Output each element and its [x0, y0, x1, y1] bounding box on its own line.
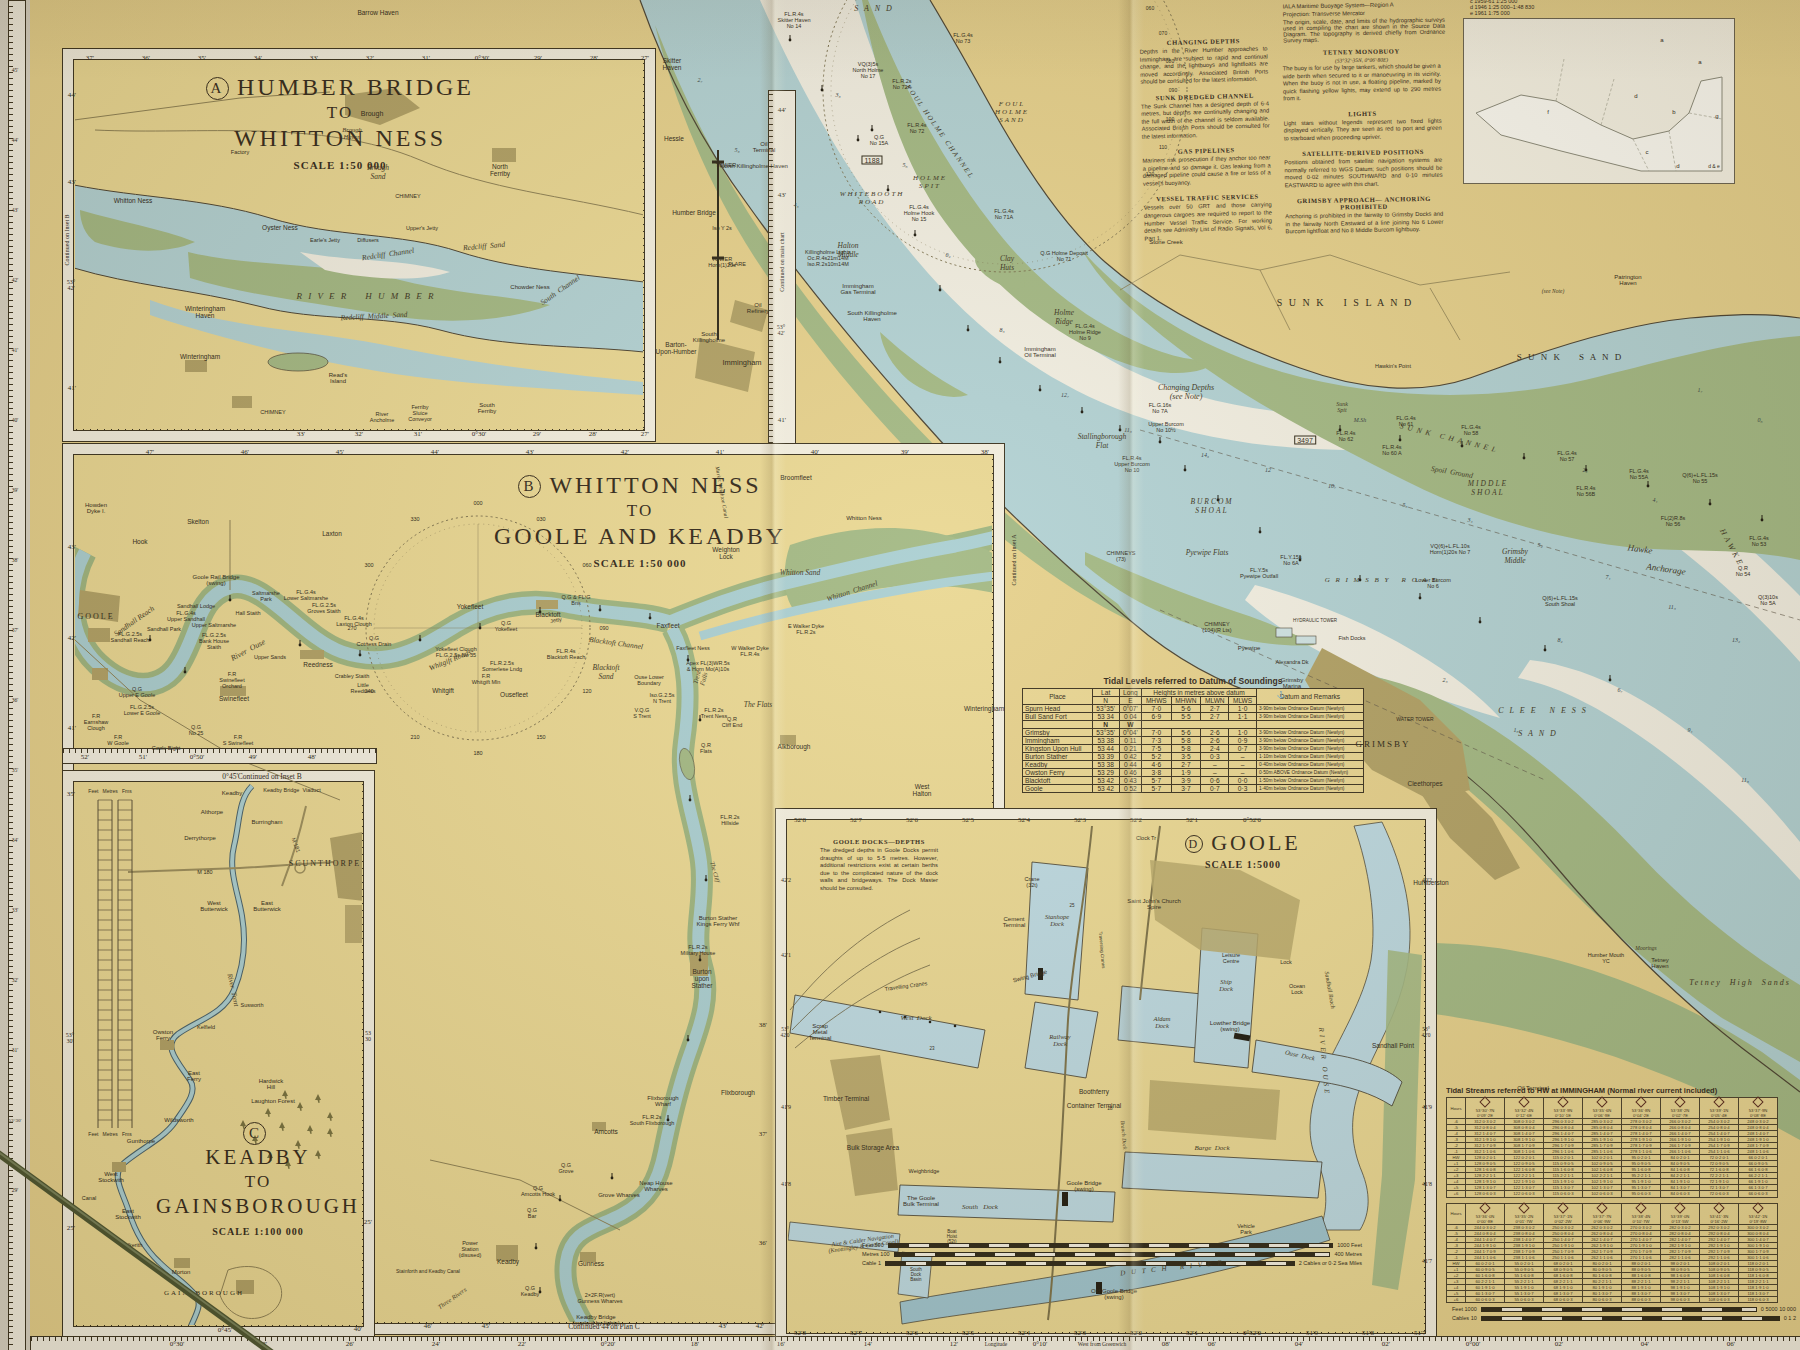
- map-label: FL.Y.15s No 6A: [1280, 554, 1301, 566]
- map-label: FL.R.4s No 72: [907, 122, 926, 134]
- map-label: 3497: [1294, 436, 1316, 445]
- map-label: 25': [364, 1218, 372, 1226]
- map-label: Hardwick Hill: [259, 1078, 284, 1090]
- map-label: Blacktoft Sand: [592, 663, 619, 681]
- map-label: Aire & Calder Navigation (Knottingley & …: [827, 1232, 898, 1254]
- map-label: Hawkin's Point: [1375, 363, 1411, 369]
- map-label: South Channel: [538, 273, 581, 307]
- map-label: Q.G Bar: [527, 1207, 537, 1219]
- map-label: Q.R Flats: [700, 742, 712, 754]
- map-label: FL.G.4s Holme Ridge No 9: [1069, 323, 1101, 341]
- map-label: Blacktoft Channel: [588, 635, 643, 651]
- map-label: Winteringham Haven: [185, 305, 225, 319]
- map-label: Ferriby Sluice Conveyor: [408, 404, 432, 422]
- map-label: Read's Island: [329, 372, 348, 384]
- map-label: 300: [364, 562, 373, 568]
- map-label: Kelfield: [197, 1024, 215, 1030]
- map-label: 46': [424, 1322, 432, 1330]
- map-label: 31': [12, 1047, 19, 1053]
- map-label: Immingham Oil Terminal: [1024, 346, 1056, 358]
- map-label: 0°30': [170, 1340, 185, 1348]
- map-label: Anchorage: [1646, 561, 1687, 576]
- map-label: 51'8: [1362, 1329, 1374, 1337]
- map-label: 10₇: [1328, 483, 1336, 489]
- map-label: Saltmarshe Park: [252, 590, 280, 602]
- map-label: 41'8: [781, 1181, 791, 1187]
- map-label: Derrythorpe: [184, 835, 216, 841]
- map-label: 51': [139, 753, 147, 761]
- map-label: 5₈: [1402, 502, 1407, 508]
- map-label: FL.G.4s Holme Hook No 15: [904, 204, 934, 222]
- map-label: 0°45'Continued on Inset B: [222, 772, 302, 781]
- map-label: Gunthorpe: [127, 1138, 155, 1144]
- map-label: 090: [599, 625, 608, 631]
- map-label: 4₁: [1652, 497, 1657, 503]
- map-label: Longitude: [985, 1341, 1008, 1347]
- map-label: Pyewipe: [1238, 645, 1261, 651]
- map-label: 29': [533, 430, 541, 438]
- map-label: Boat Hoist (52t): [947, 1229, 957, 1244]
- map-label: Immingham: [722, 358, 761, 367]
- map-label: 14₆: [1201, 452, 1209, 458]
- map-label: Broomfleet: [780, 474, 811, 481]
- map-label: 28: [1107, 1106, 1112, 1111]
- map-label: 40': [12, 417, 19, 423]
- map-label: Railway Dock: [1049, 1033, 1070, 1047]
- map-label: BURCOM SHOAL: [1190, 497, 1233, 515]
- map-label: Flixborough: [721, 1089, 755, 1096]
- map-label: Q.G Grove: [559, 1162, 574, 1174]
- map-label: Swing Bridge: [1012, 969, 1048, 984]
- map-label: 51'7: [1414, 1329, 1426, 1337]
- map-label: Amcotts: [594, 1128, 617, 1135]
- map-label: Feet Metres Fms: [88, 1131, 131, 1137]
- map-label: Faxfleet: [656, 622, 679, 629]
- map-label: 0°20': [601, 1340, 616, 1348]
- map-label: 2×2F.R(vert) Gunness Wharves: [577, 1292, 622, 1304]
- map-label: Faxfleet Ness: [676, 645, 710, 651]
- map-label: 27': [641, 430, 649, 438]
- map-label: 42': [621, 448, 629, 456]
- map-label: 53° 42': [777, 324, 785, 336]
- map-label: Yokefleet: [457, 603, 484, 610]
- map-label: S A N D: [854, 4, 894, 13]
- map-label: Morton: [172, 1269, 191, 1275]
- map-label: 52'7: [850, 1329, 862, 1337]
- map-label: Goole Bridge (swing): [1066, 1180, 1101, 1192]
- map-label: 41': [716, 448, 724, 456]
- map-label: f: [1547, 109, 1549, 115]
- map-label: Jetty: [550, 616, 562, 624]
- map-label: West Halton: [913, 783, 932, 797]
- map-label: FL.R.4s No 60 A: [1382, 444, 1402, 456]
- map-label: Weighbridge: [909, 1168, 940, 1174]
- map-label: 2₅: [1442, 677, 1447, 683]
- map-label: a: [1698, 59, 1701, 65]
- map-label: Q.R No 54: [1736, 565, 1751, 577]
- map-label: 52'7: [850, 816, 862, 824]
- map-label: Tetney Haven: [1651, 957, 1669, 969]
- map-label: Redcliff Sand: [463, 240, 506, 253]
- map-label: Gunness: [578, 1260, 604, 1267]
- map-label: East Stockwith: [115, 1208, 141, 1220]
- map-label: 8₅: [999, 327, 1004, 333]
- map-label: FL.R.2s Hillside: [720, 814, 739, 826]
- map-label: Q.G Amcotts Hook: [521, 1185, 555, 1197]
- map-label: Brough Sand: [367, 163, 389, 181]
- map-label: The Goole Bulk Terminal: [903, 1195, 939, 1207]
- map-label: River Trent: [226, 973, 241, 1007]
- map-label: 49': [249, 753, 257, 761]
- map-label: 52'4: [1018, 1329, 1030, 1337]
- map-label: 23: [929, 1046, 934, 1051]
- map-label: 44': [12, 137, 19, 143]
- map-label: 44': [778, 106, 786, 114]
- map-label: Brough: [361, 110, 384, 117]
- map-label: W Walker Dyke FL.R.4s: [731, 645, 769, 657]
- map-label: a: [1660, 37, 1663, 43]
- map-label: Barrow Haven: [357, 9, 398, 16]
- map-label: FL(2)R.8s No 56: [1661, 515, 1685, 527]
- map-label: Alkborough: [778, 743, 811, 750]
- map-label: 38': [12, 557, 19, 563]
- map-label: 0°52'0: [1243, 1329, 1261, 1337]
- map-label: 12': [950, 1340, 958, 1348]
- map-label: Weighton Lock: [712, 546, 739, 560]
- map-label: 11₃: [1124, 427, 1132, 433]
- map-label: Three Rivers: [436, 1286, 467, 1311]
- map-label: Swinefleet: [219, 695, 249, 702]
- map-label: Vehicle Park: [1237, 1223, 1255, 1235]
- map-label: Laxton: [322, 530, 342, 537]
- map-label: S U N K S A N D: [1517, 352, 1624, 362]
- map-label: 210: [410, 734, 419, 740]
- map-label: Q.R Cliff End: [722, 716, 743, 728]
- map-label: 42': [12, 277, 19, 283]
- map-label: GAINSBOROUGH: [164, 1289, 244, 1297]
- map-label: North Ferriby: [490, 163, 510, 177]
- map-label: 16': [777, 1340, 785, 1348]
- map-label: 37': [12, 627, 19, 633]
- map-label: Power Station (disused): [459, 1240, 482, 1258]
- map-label: HYDRAULIC TOWER: [1293, 618, 1337, 623]
- map-label: Fish Docks: [1338, 635, 1365, 641]
- map-label: Whitton Ness: [846, 515, 882, 521]
- map-label: Oyster Ness: [262, 224, 298, 231]
- map-label: 41'9: [781, 1104, 791, 1110]
- map-label: 330: [410, 516, 419, 522]
- map-label: Stanhope Dock: [1045, 913, 1069, 927]
- map-label: 36': [142, 54, 150, 62]
- map-label: Whitgift: [432, 687, 454, 694]
- map-label: F.R S Swinefleet: [223, 734, 254, 746]
- map-label: Grimsby Marina: [1281, 677, 1303, 689]
- map-label: Upper Burcom No 10½: [1148, 421, 1183, 433]
- map-label: 52'5: [962, 1329, 974, 1337]
- map-label: Whitton Channel: [825, 579, 878, 604]
- map-label: 0₈: [1757, 417, 1762, 423]
- map-label: 8₂: [1557, 637, 1562, 643]
- map-label: 070: [1159, 30, 1167, 36]
- map-label: b: [1672, 109, 1675, 115]
- map-label: Stainforth and Keadby Canal: [396, 1268, 460, 1274]
- map-label: 41': [68, 724, 76, 732]
- map-label: Spoil Ground: [1430, 464, 1473, 480]
- map-label: 5₃: [734, 147, 739, 153]
- map-label: 24': [432, 1340, 440, 1348]
- map-label: The Flats: [744, 700, 773, 709]
- map-label: 45': [482, 1322, 490, 1330]
- map-label: 33': [297, 430, 305, 438]
- map-label: South Dock Basin: [910, 1267, 922, 1282]
- map-label: 52'5: [962, 816, 974, 824]
- map-label: FL.G.2.5s Sandhall Reach: [111, 631, 150, 643]
- map-label: 38': [981, 448, 989, 456]
- nautical-chart-sheet: AHUMBER BRIDGE TO WHITTON NESS SCALE 1:5…: [0, 0, 1800, 1350]
- map-label: F.R Earnshaw Clough: [84, 713, 108, 731]
- map-label: 6₇: [1617, 687, 1622, 693]
- map-label: 26': [346, 1340, 354, 1348]
- map-label: 1₈: [1513, 727, 1518, 733]
- map-label: FL.G.4s No 61: [1396, 415, 1416, 427]
- map-label: Ouse Lower Boundary: [634, 674, 664, 686]
- map-label: Earle's Jetty: [310, 237, 340, 243]
- map-label: 3₄: [1467, 517, 1472, 523]
- map-label: 2₉: [1582, 467, 1587, 473]
- map-label: Continued on Inset B: [64, 214, 70, 265]
- map-label: 090: [1169, 87, 1177, 93]
- map-label: Q(6)+L.FL.15s South Shoal: [1542, 595, 1578, 607]
- map-label: Diffusers: [357, 237, 379, 243]
- map-label: 44': [431, 448, 439, 456]
- map-label: Upper's Jetty: [406, 225, 438, 231]
- map-label: FL.Y.5s Pyewipe Outfall: [1240, 567, 1278, 579]
- map-label: 46': [241, 448, 249, 456]
- map-label: Immingham Gas Terminal: [840, 283, 875, 295]
- map-label: GOOLE: [77, 612, 114, 621]
- map-label: Upper Sands: [254, 654, 286, 660]
- map-label: 44': [68, 91, 76, 99]
- map-label: Market Weighton Canal: [714, 466, 729, 519]
- map-label: Susworth: [241, 1002, 264, 1008]
- map-label: d & e: [1708, 163, 1720, 169]
- map-label: M 181: [291, 837, 302, 853]
- map-label: West Butterwick: [200, 900, 228, 912]
- map-label: 3₃: [835, 92, 840, 98]
- map-label: 42': [68, 634, 76, 642]
- map-label: CHIMNEYS (73): [1106, 550, 1135, 562]
- map-label: South Killingholme Haven: [847, 310, 897, 322]
- map-label: 52'2: [1130, 1329, 1142, 1337]
- map-label: S U N K I S L A N D: [1277, 297, 1413, 308]
- map-label: FOUL HOLME SAND: [995, 100, 1029, 124]
- map-label: WHITEBOOTH ROAD: [840, 190, 905, 206]
- map-label: 53 30: [365, 1030, 371, 1042]
- map-label: Old Goole Bridge (swing): [1091, 1288, 1137, 1300]
- map-label: Laughton Forest: [251, 1098, 295, 1104]
- map-label: 35': [198, 54, 206, 62]
- map-label: 32': [12, 977, 19, 983]
- map-label: 41'9: [1422, 1104, 1432, 1110]
- map-label: Q.G Upper E Goole: [119, 686, 155, 698]
- map-label: 41'8: [1422, 1181, 1432, 1187]
- map-label: 28': [590, 54, 598, 62]
- map-label: 11₅: [1668, 604, 1676, 610]
- map-label: South Ferriby: [478, 402, 497, 414]
- map-label: FL.R.4s Skitter Haven No 14: [777, 11, 810, 29]
- map-label: g: [1715, 113, 1718, 119]
- map-label: 52'1: [1186, 1329, 1198, 1337]
- map-label: Factory: [231, 149, 249, 155]
- map-label: 25: [1069, 903, 1074, 908]
- map-label: GRIMSBY: [1355, 739, 1410, 749]
- map-label: Redcliff Middle Sand: [340, 310, 407, 322]
- map-label: Alexandra Dk: [1275, 659, 1308, 665]
- map-label: Q(6)+L.FL.15s No 55: [1682, 472, 1718, 484]
- map-label: Crabley Staith: [335, 673, 370, 679]
- map-label: Cement Terminal: [1003, 916, 1026, 928]
- map-label: 14': [864, 1340, 872, 1348]
- map-label: Boothferry: [1079, 1088, 1109, 1095]
- map-label: Althorpe: [201, 809, 223, 815]
- map-label: FL.G.2.5s Groves Staith: [307, 602, 340, 614]
- map-label: Brough Haven: [342, 126, 361, 140]
- map-label: Burringham: [251, 819, 282, 825]
- map-label: FL.G.16s No 7A: [1149, 402, 1172, 414]
- map-label: Iso.G.2.5s N Trent: [649, 692, 674, 704]
- map-label: 06': [1727, 1340, 1735, 1348]
- map-label: 12₇: [1061, 392, 1069, 398]
- map-label: VQ(3)5s North Holme No 17: [853, 61, 884, 79]
- map-label: 53° 30': [66, 1032, 74, 1044]
- map-label: 100: [1166, 116, 1174, 122]
- map-label: 240: [364, 688, 373, 694]
- map-label: 52'2: [1130, 816, 1142, 824]
- map-label: 41': [68, 384, 76, 392]
- map-label: Clay Huts: [1000, 254, 1014, 272]
- map-label: 42'2: [781, 877, 791, 883]
- map-label: Q.G Cotness Drain: [357, 635, 392, 647]
- map-label: 060: [582, 562, 591, 568]
- map-label: 28': [589, 430, 597, 438]
- map-label: 40': [354, 1325, 362, 1333]
- map-label: 12: [1265, 467, 1271, 473]
- map-label: d: [1676, 163, 1679, 169]
- map-label: HAWKE: [1718, 527, 1746, 569]
- map-label: Saint John's Church Spire: [1127, 898, 1181, 910]
- map-label: 53° 42'0: [780, 1026, 789, 1038]
- map-label: 030: [536, 516, 545, 522]
- map-label: 13₂: [1732, 637, 1740, 643]
- map-label: 0°30': [475, 54, 490, 62]
- map-label: FL.R.2s South Flixborough: [630, 1114, 675, 1126]
- map-label: VQ(6)+L.FL.10s Horn(1)20s No 7: [1430, 543, 1471, 555]
- map-label: Redcliff Channel: [361, 246, 414, 262]
- map-label: Patrington Haven: [1614, 274, 1641, 286]
- map-label: Moorings: [1635, 945, 1656, 951]
- map-label: 270: [347, 625, 356, 631]
- map-label: 34': [12, 837, 19, 843]
- map-label: WATER TOWER: [1396, 716, 1433, 722]
- map-label: 39': [12, 487, 19, 493]
- map-label: MIDDLE SHOAL: [1468, 479, 1508, 497]
- map-label: 0°50': [190, 753, 205, 761]
- map-label: 0°00': [1466, 1340, 1481, 1348]
- map-label: Cleethorpes: [1407, 780, 1442, 787]
- map-label: Sandhall Reach: [1324, 971, 1336, 1009]
- map-label: Ouse Dock: [1284, 1048, 1315, 1061]
- map-label: Q.G Yokefleet: [495, 620, 517, 632]
- map-label: 7₁: [1605, 574, 1610, 580]
- map-label: 060: [1146, 5, 1154, 11]
- map-label: Crane (32t): [1025, 876, 1040, 888]
- map-label: Sandhall Point: [1372, 1042, 1414, 1049]
- map-label: East Butterwick: [253, 900, 281, 912]
- map-label: Q.G Keadby: [521, 1285, 540, 1297]
- map-label: F.R Whitgift Mln: [472, 673, 501, 685]
- map-label: 53° 42': [67, 279, 75, 291]
- map-label: 43': [12, 207, 19, 213]
- map-label: Clock Tr: [1136, 835, 1156, 841]
- map-label: 38': [759, 1021, 767, 1029]
- map-label: 45': [336, 448, 344, 456]
- map-label: Q.G No 25: [189, 724, 204, 736]
- map-label: Trent Falls: [691, 670, 708, 687]
- map-label: Sandhall Lodge: [177, 603, 215, 609]
- map-label: Apex FL(3)WR.5s & Horn Mo(A)10s: [686, 660, 730, 672]
- map-label: Bulk Storage Area: [847, 1144, 899, 1151]
- map-label: Traversing Cranes: [1098, 931, 1106, 968]
- map-label: 43': [778, 191, 786, 199]
- map-label: Travelling Cranes: [884, 980, 927, 992]
- map-label: 33': [310, 54, 318, 62]
- map-label: Q.G & FL.G Bns: [561, 594, 590, 606]
- map-label: 000: [473, 500, 482, 506]
- map-label: CHIMNEY: [395, 193, 420, 199]
- map-label: South Dock: [962, 1203, 998, 1211]
- map-label: 52': [81, 753, 89, 761]
- map-label: 08': [1162, 1340, 1170, 1348]
- map-label: 110: [1159, 144, 1167, 150]
- map-label: 22': [518, 1340, 526, 1348]
- map-label: 42'2: [1422, 877, 1432, 883]
- map-label: 1188: [861, 156, 882, 165]
- map-label: River Ancholme: [370, 411, 394, 423]
- map-label: Howden Dyke I.: [85, 502, 107, 514]
- map-label: Winteringham: [180, 353, 220, 360]
- map-label: Neap House Wharves: [639, 1180, 672, 1192]
- map-label: FL.G.4s No 57: [1557, 450, 1577, 462]
- map-label: Stone Creek: [1149, 239, 1182, 245]
- map-label: Oil Terminal: [1517, 1085, 1549, 1091]
- map-label: 5₂: [1537, 542, 1542, 548]
- map-label: 43': [719, 1322, 727, 1330]
- map-label: 9₁: [1687, 727, 1692, 733]
- map-label: c: [1646, 149, 1649, 155]
- map-label: 52'4: [1018, 816, 1030, 824]
- map-label: 29': [12, 1187, 19, 1193]
- map-label: Whitton Ness: [114, 197, 153, 204]
- map-label: 45': [12, 67, 19, 73]
- map-label: FL.G.4s No 58: [1461, 424, 1481, 436]
- map-label: Owston Ferry: [153, 1029, 173, 1041]
- map-label: 33': [12, 907, 19, 913]
- map-label: 0°30': [472, 430, 487, 438]
- map-label: Container Terminal: [1067, 1102, 1121, 1109]
- map-label: Ocean Lock: [1289, 983, 1305, 995]
- map-label: Sandhall Park: [147, 626, 181, 632]
- map-label: 29': [534, 54, 542, 62]
